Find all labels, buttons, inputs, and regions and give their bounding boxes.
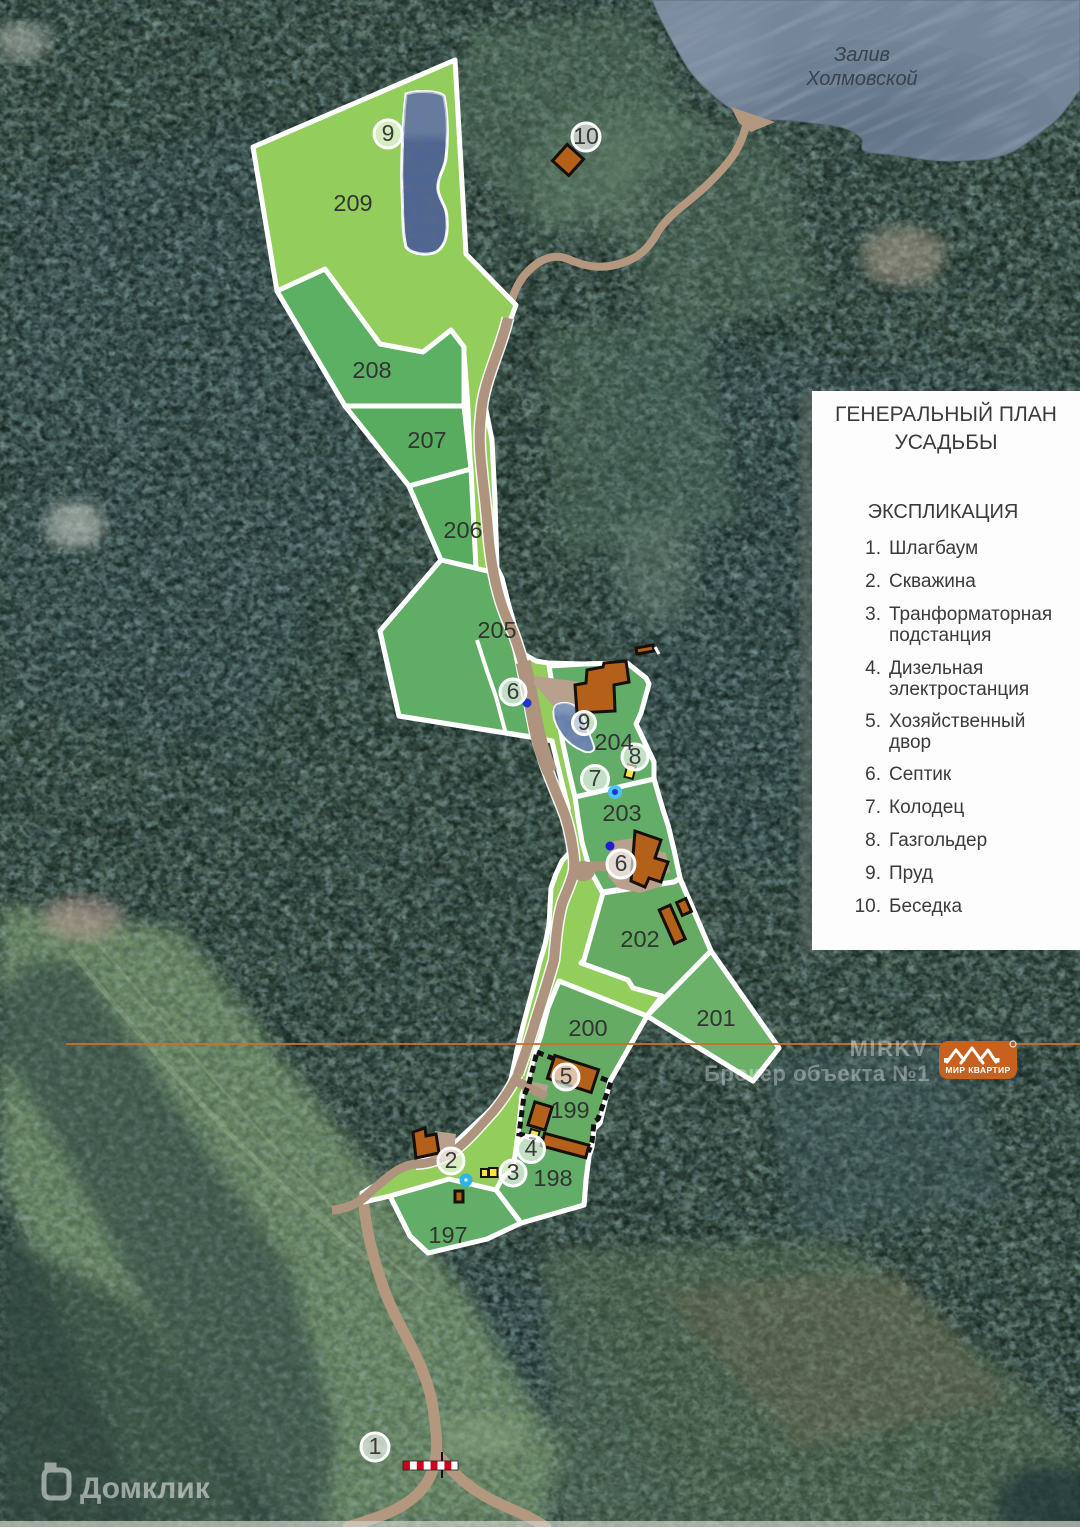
- svg-text:МИР КВАРТИР: МИР КВАРТИР: [945, 1065, 1010, 1075]
- svg-text:208: 208: [352, 357, 391, 383]
- svg-text:205: 205: [477, 617, 516, 643]
- svg-text:Пруд: Пруд: [889, 863, 933, 884]
- svg-text:9: 9: [382, 120, 395, 146]
- svg-text:3.: 3.: [865, 604, 881, 625]
- svg-text:7.: 7.: [865, 797, 881, 818]
- svg-text:200: 200: [568, 1015, 607, 1041]
- svg-text:209: 209: [333, 190, 372, 216]
- svg-text:Газгольдер: Газгольдер: [889, 830, 987, 851]
- svg-text:1: 1: [369, 1433, 382, 1459]
- svg-text:8.: 8.: [865, 830, 881, 851]
- svg-text:Шлагбаум: Шлагбаум: [889, 538, 978, 559]
- svg-text:9: 9: [578, 709, 591, 735]
- svg-text:199: 199: [550, 1097, 589, 1123]
- svg-text:197: 197: [428, 1222, 467, 1248]
- svg-text:201: 201: [696, 1005, 735, 1031]
- svg-text:203: 203: [602, 800, 641, 826]
- svg-text:206: 206: [443, 517, 482, 543]
- svg-text:1.: 1.: [865, 538, 881, 559]
- svg-text:УСАДЬБЫ: УСАДЬБЫ: [894, 431, 997, 454]
- svg-text:6.: 6.: [865, 764, 881, 785]
- svg-text:Транформаторная: Транформаторная: [889, 604, 1052, 625]
- svg-text:10.: 10.: [855, 896, 881, 917]
- svg-text:Брокер объекта №1: Брокер объекта №1: [704, 1061, 930, 1086]
- svg-text:6: 6: [507, 678, 520, 704]
- svg-text:Домклик: Домклик: [80, 1472, 211, 1505]
- svg-text:204: 204: [594, 729, 633, 755]
- svg-text:ЭКСПЛИКАЦИЯ: ЭКСПЛИКАЦИЯ: [868, 501, 1019, 523]
- svg-text:Залив: Залив: [834, 44, 890, 66]
- svg-text:5.: 5.: [865, 711, 881, 732]
- svg-text:7: 7: [589, 765, 602, 791]
- svg-text:198: 198: [533, 1165, 572, 1191]
- svg-text:202: 202: [620, 926, 659, 952]
- svg-text:электростанция: электростанция: [889, 679, 1029, 700]
- svg-text:Хозяйственный: Хозяйственный: [889, 711, 1025, 732]
- svg-text:Скважина: Скважина: [889, 571, 976, 592]
- svg-text:Колодец: Колодец: [889, 797, 964, 818]
- svg-text:двор: двор: [889, 732, 931, 753]
- svg-text:2: 2: [445, 1147, 458, 1173]
- svg-text:Дизельная: Дизельная: [889, 658, 983, 679]
- svg-text:3: 3: [507, 1159, 520, 1185]
- svg-text:207: 207: [407, 427, 446, 453]
- svg-text:6: 6: [615, 850, 628, 876]
- svg-text:4.: 4.: [865, 658, 881, 679]
- svg-text:Холмовской: Холмовской: [805, 68, 917, 90]
- svg-text:2.: 2.: [865, 571, 881, 592]
- svg-text:подстанция: подстанция: [889, 625, 991, 646]
- svg-text:Беседка: Беседка: [889, 896, 963, 917]
- svg-text:Септик: Септик: [889, 764, 952, 785]
- svg-text:4: 4: [525, 1135, 538, 1161]
- svg-text:5: 5: [560, 1063, 573, 1089]
- svg-text:10: 10: [573, 123, 599, 149]
- svg-text:9.: 9.: [865, 863, 881, 884]
- svg-text:ГЕНЕРАЛЬНЫЙ ПЛАН: ГЕНЕРАЛЬНЫЙ ПЛАН: [835, 402, 1057, 426]
- svg-text:MIRKV: MIRKV: [850, 1036, 928, 1061]
